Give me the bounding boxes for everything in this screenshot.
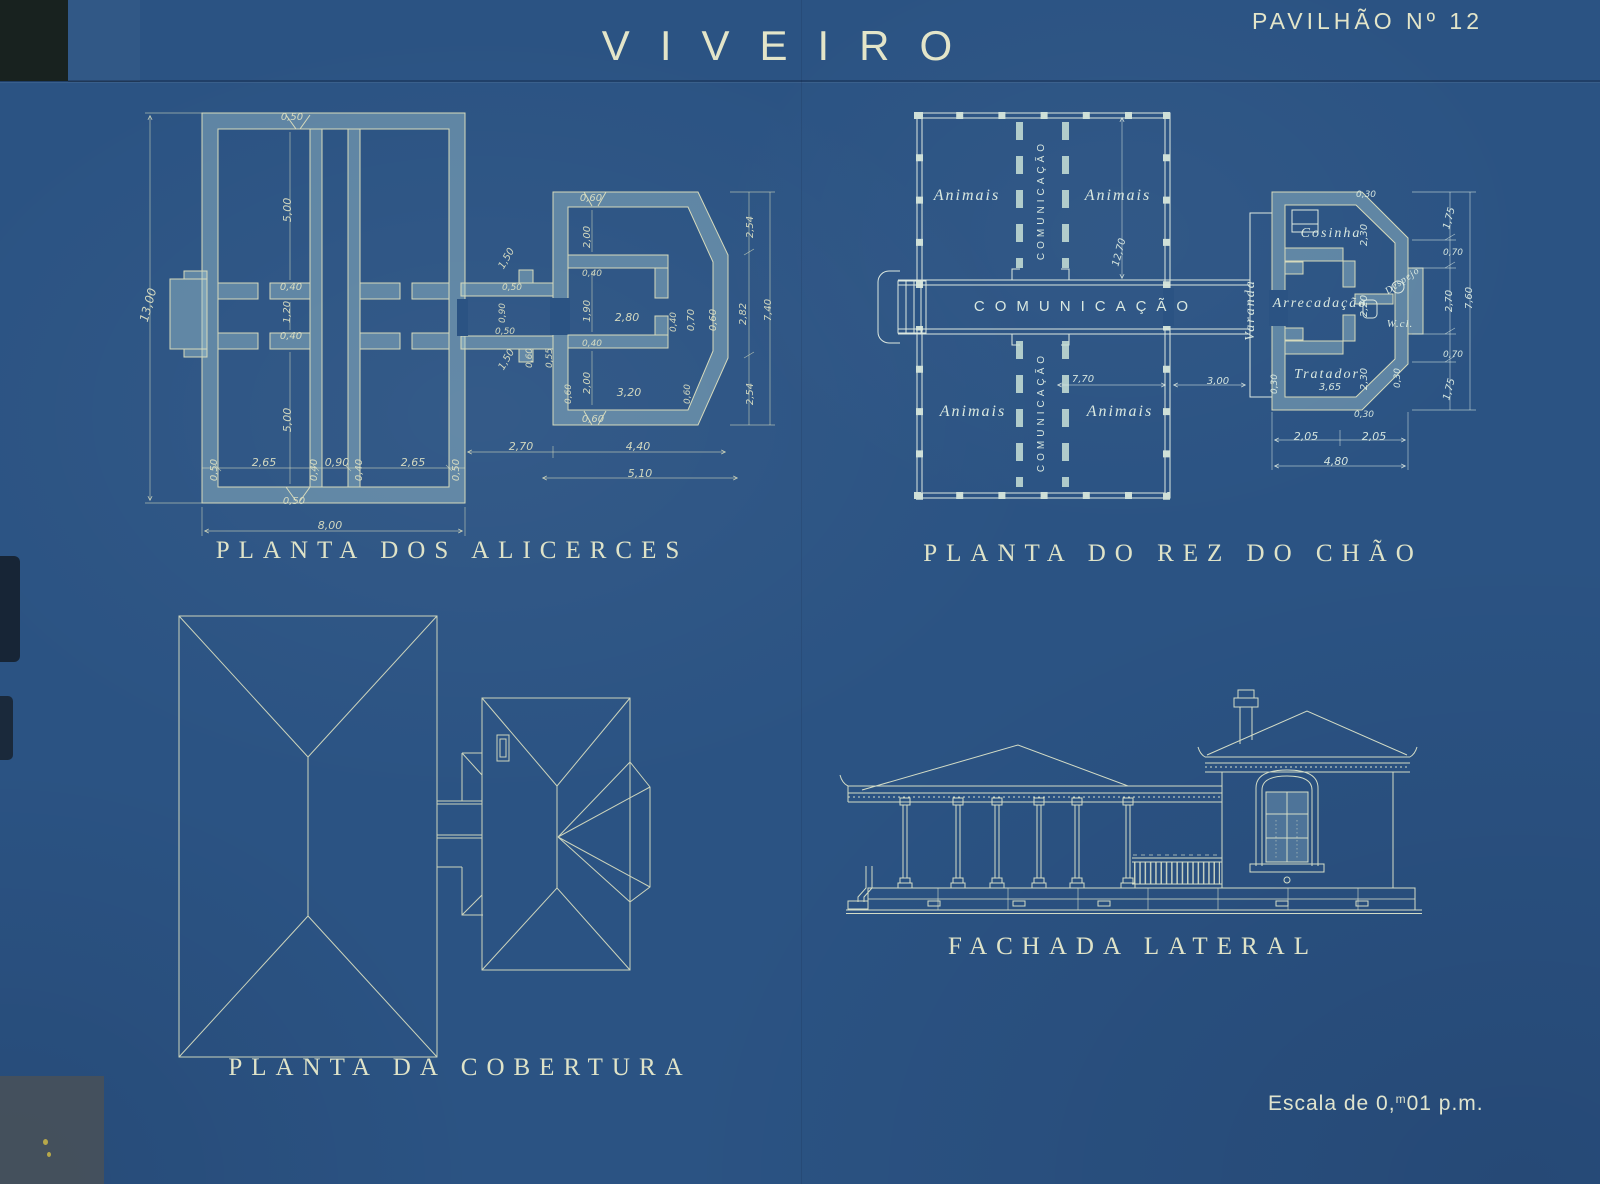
annotation-alicerces-23: 0,60	[580, 193, 602, 204]
annotation-rez_do_chao-30: 7,60	[1464, 287, 1475, 309]
annotation-rez_do_chao-27: 1,75	[1441, 206, 1457, 230]
annotation-alicerces-3: 0,40	[280, 282, 302, 293]
annotation-alicerces-31: 0,40	[582, 339, 602, 349]
annotation-alicerces-39: 5,10	[628, 467, 653, 480]
annotation-alicerces-2: 5,00	[281, 198, 294, 223]
edge-blot	[0, 556, 20, 662]
annotation-alicerces-8: 2,65	[252, 456, 277, 469]
annotation-rez_do_chao-13: Arrecadação	[1272, 296, 1368, 311]
annotation-rez_do_chao-6: COMUNICAÇÃO	[1034, 352, 1047, 472]
annotation-alicerces-29: 0,70	[686, 309, 697, 331]
annotation-alicerces-21: 0,60	[525, 348, 535, 368]
ground-floor-labels: AnimaisAnimaisAnimaisAnimaisCOMUNICAÇÃOC…	[933, 140, 1475, 472]
vertical-fold-crease	[801, 0, 802, 1184]
scale-note: Escala de 0,m01 p.m.	[1268, 1092, 1484, 1116]
annotation-alicerces-5: 0,40	[280, 331, 302, 342]
annotation-alicerces-1: 0,50	[281, 112, 303, 123]
annotation-alicerces-37: 2,70	[509, 440, 534, 453]
annotation-alicerces-42: 7,40	[763, 299, 774, 321]
annotation-alicerces-0: 13,00	[137, 286, 160, 323]
sheet-title: VIVEIRO	[602, 22, 982, 70]
caption-side-facade: FACHADA LATERAL	[948, 933, 1318, 961]
annotation-rez_do_chao-14: 2,20	[1359, 295, 1370, 317]
annotation-alicerces-43: 2,54	[745, 383, 756, 405]
annotation-alicerces-27: 2,80	[615, 311, 640, 324]
annotation-rez_do_chao-16: W.cl.	[1387, 318, 1414, 330]
annotation-rez_do_chao-5: COMUNICAÇÃO	[1034, 140, 1047, 260]
side-facade	[840, 690, 1422, 914]
annotation-rez_do_chao-32: 1,75	[1441, 377, 1457, 401]
annotation-alicerces-11: 0,40	[354, 459, 365, 481]
horizontal-fold-crease	[0, 80, 1600, 82]
annotation-alicerces-19: 0,50	[495, 327, 515, 337]
annotation-rez_do_chao-8: 7,70	[1072, 374, 1094, 385]
blueprint-sheet: 13,000,505,000,401,200,405,000,502,650,4…	[0, 0, 1600, 1184]
annotation-alicerces-28: 0,40	[669, 312, 679, 332]
annotation-rez_do_chao-26: 4,80	[1324, 455, 1349, 468]
annotation-rez_do_chao-25: 2,05	[1362, 430, 1387, 443]
annotation-alicerces-16: 1,50	[497, 246, 518, 271]
annotation-rez_do_chao-29: 2,70	[1444, 290, 1455, 312]
annotation-rez_do_chao-28: 0,70	[1443, 248, 1463, 258]
annotation-alicerces-33: 0,60	[564, 384, 574, 404]
annotation-rez_do_chao-2: Animais	[939, 403, 1006, 420]
annotation-alicerces-24: 2,00	[582, 226, 593, 248]
annotation-rez_do_chao-1: Animais	[1084, 187, 1151, 204]
annotation-rez_do_chao-18: 3,65	[1319, 382, 1341, 393]
paper-speck	[47, 1152, 51, 1157]
veranda-columns	[898, 798, 1135, 888]
annotation-rez_do_chao-19: 2,30	[1359, 368, 1370, 390]
pavilion-number: PAVILHÃO Nº 12	[1252, 8, 1483, 35]
annotation-rez_do_chao-7: 12,70	[1111, 237, 1129, 268]
annotation-alicerces-22: 0,55	[545, 348, 555, 368]
corner-patch	[0, 1076, 104, 1184]
annotation-rez_do_chao-31: 0,70	[1443, 350, 1463, 360]
caption-ground-floor-plan: PLANTA DO REZ DO CHÃO	[923, 540, 1423, 568]
annotation-alicerces-10: 0,90	[325, 456, 350, 469]
annotation-rez_do_chao-20: 0,30	[1356, 190, 1376, 200]
annotation-rez_do_chao-24: 2,05	[1294, 430, 1319, 443]
annotation-rez_do_chao-22: 0,30	[1393, 368, 1403, 388]
annotation-rez_do_chao-9: 3,00	[1207, 376, 1229, 387]
annotation-alicerces-32: 2,00	[582, 372, 593, 394]
caption-foundation-plan: PLANTA DOS ALICERCES	[216, 537, 688, 565]
annotation-alicerces-9: 0,40	[309, 459, 320, 481]
annotation-rez_do_chao-11: Cosinha	[1301, 226, 1362, 241]
annotation-alicerces-35: 0,60	[683, 384, 693, 404]
caption-roof-plan: PLANTA DA COBERTURA	[228, 1054, 691, 1082]
blueprint-canvas: 13,000,505,000,401,200,405,000,502,650,4…	[0, 0, 1600, 1184]
edge-blot-small	[0, 696, 13, 760]
annotation-alicerces-4: 1,20	[282, 301, 293, 323]
annotation-alicerces-20: 1,50	[497, 347, 518, 372]
annotation-alicerces-13: 0,50	[451, 459, 462, 481]
annotation-rez_do_chao-21: 0,30	[1270, 374, 1280, 394]
annotation-rez_do_chao-3: Animais	[1086, 403, 1153, 420]
paper-speck	[43, 1139, 48, 1145]
annotation-rez_do_chao-4: COMUNICAÇÃO	[974, 298, 1198, 315]
annotation-alicerces-18: 0,90	[498, 303, 508, 323]
annotation-alicerces-38: 4,40	[626, 440, 651, 453]
annotation-alicerces-14: 0,50	[283, 496, 305, 507]
annotation-alicerces-26: 1,90	[582, 300, 593, 322]
annotation-rez_do_chao-17: Tratador	[1294, 367, 1360, 382]
annotation-alicerces-12: 2,65	[401, 456, 426, 469]
annotation-alicerces-7: 0,50	[209, 459, 220, 481]
annotation-alicerces-40: 2,54	[745, 216, 756, 238]
dark-tape-corner	[0, 0, 68, 81]
annotation-rez_do_chao-10: Varanda	[1243, 279, 1258, 340]
roof-plan	[179, 616, 650, 1057]
annotation-alicerces-25: 0,40	[582, 269, 602, 279]
annotation-alicerces-15: 8,00	[318, 519, 343, 532]
annotation-alicerces-41: 2,82	[738, 303, 749, 325]
annotation-alicerces-30: 0,60	[708, 309, 719, 331]
annotation-rez_do_chao-0: Animais	[933, 187, 1000, 204]
annotation-alicerces-34: 3,20	[617, 386, 642, 399]
annotation-alicerces-17: 0,50	[502, 283, 522, 293]
annotation-rez_do_chao-23: 0,30	[1354, 410, 1374, 420]
tape-shadow	[68, 0, 140, 82]
annotation-rez_do_chao-12: 2,30	[1359, 224, 1370, 246]
annotation-alicerces-6: 5,00	[281, 408, 294, 433]
annotation-alicerces-36: 0,60	[582, 414, 604, 425]
